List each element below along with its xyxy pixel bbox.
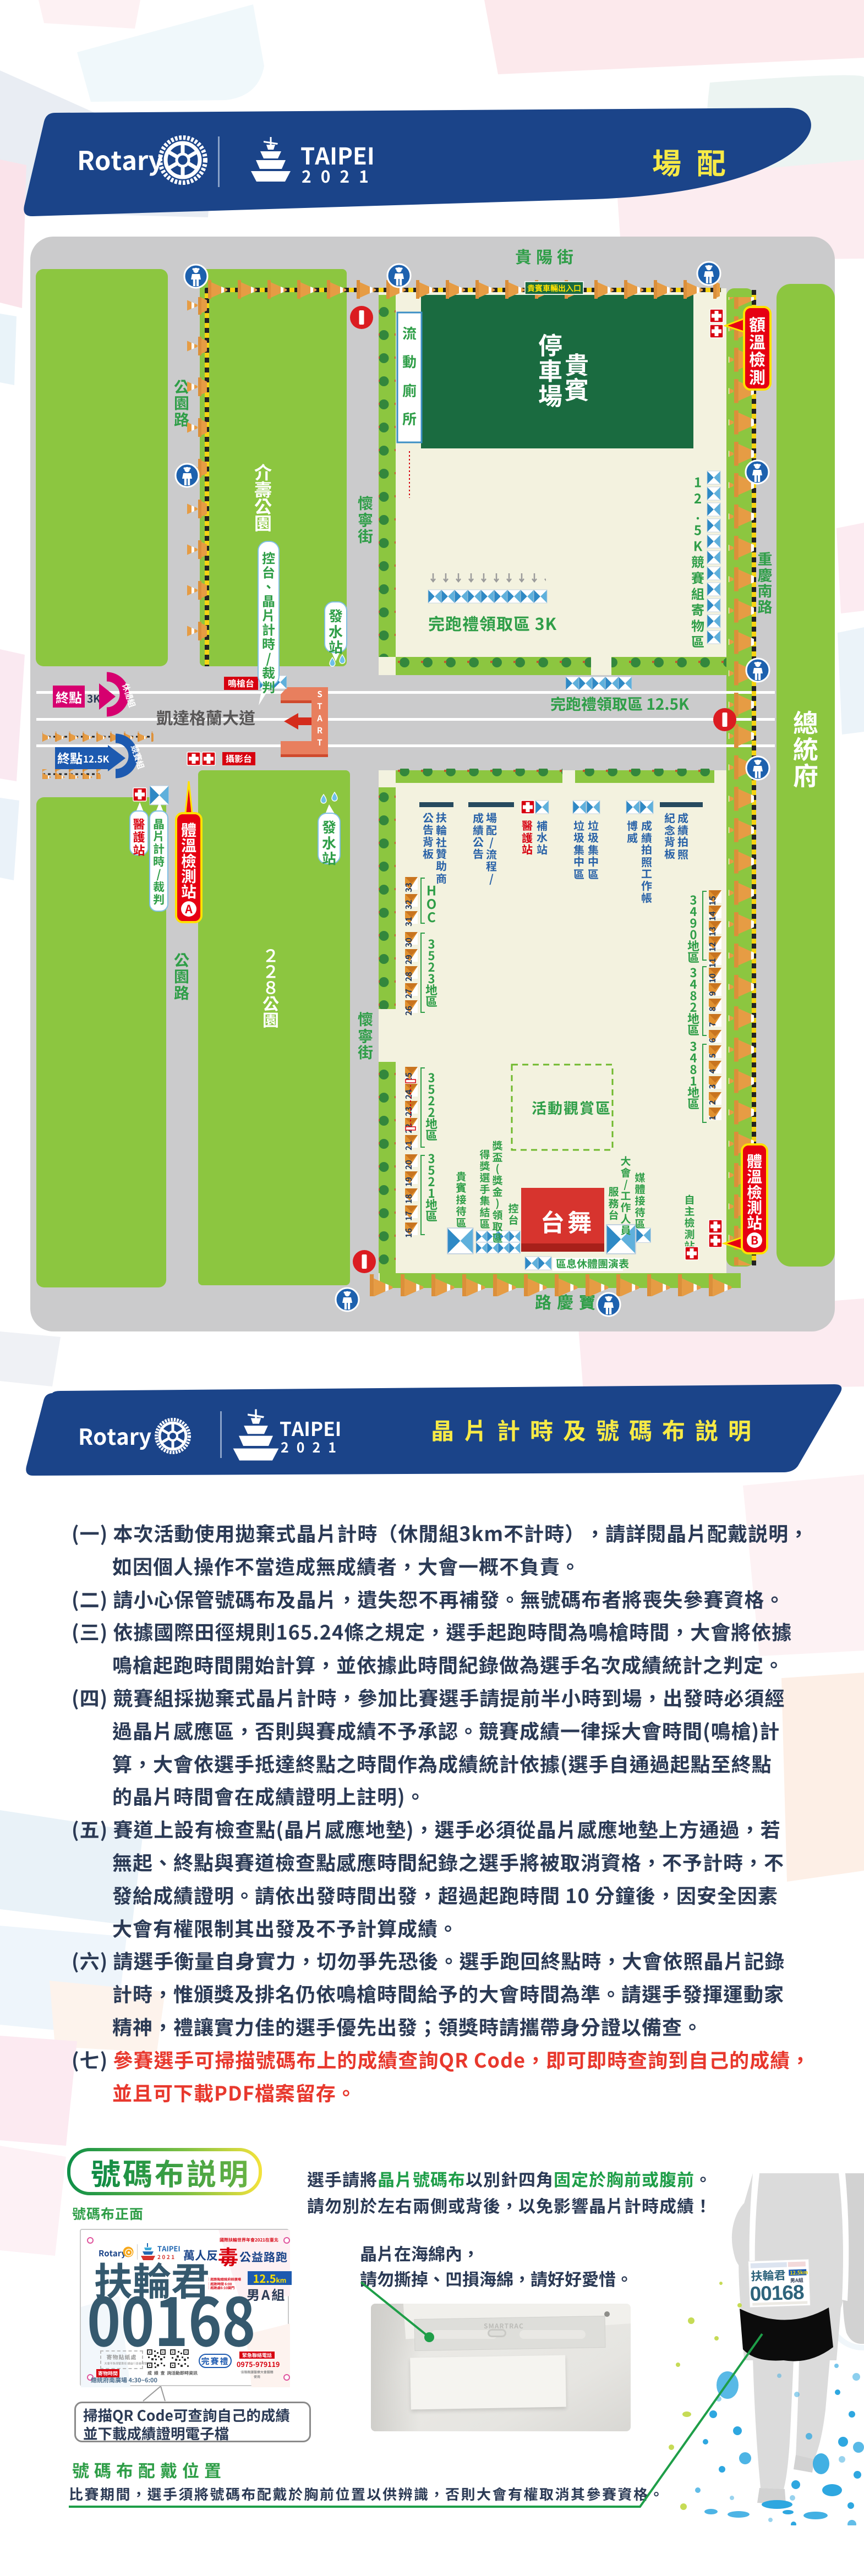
svg-text:14: 14 [707,911,718,921]
svg-text:終點: 終點 [57,748,83,767]
svg-text:扶輪社贊助商: 扶輪社贊助商 [434,812,450,885]
svg-text:晶片計時及號碼布説明: 晶片計時及號碼布説明 [431,1413,761,1446]
svg-text:16: 16 [403,1228,414,1238]
svg-text:31: 31 [403,917,414,927]
svg-text:活動觀賞區: 活動觀賞區 [532,1097,611,1118]
svg-text:3490地區: 3490地區 [685,894,702,963]
svg-text:發水站: 發水站 [319,820,340,866]
svg-text:2: 2 [707,1100,718,1105]
svg-text:貴陽街: 貴陽街 [515,244,578,268]
svg-text:7: 7 [707,1022,718,1027]
svg-text:21: 21 [403,1141,414,1150]
svg-text:懷寧街: 懷寧街 [354,495,376,545]
svg-text:3523地區: 3523地區 [423,938,440,1007]
svg-text:5: 5 [707,1053,718,1058]
svg-text:總統府: 總統府 [788,710,824,789]
svg-text:公園路: 公園路 [171,952,193,1001]
svg-text:成績拍照工作帳: 成績拍照工作帳 [639,820,655,905]
svg-text:26: 26 [403,1006,414,1016]
svg-text:6: 6 [707,1038,718,1043]
svg-text:17: 17 [403,1211,414,1221]
svg-text:12.5K競賽組寄物區: 12.5K競賽組寄物區 [688,475,708,651]
svg-text:垃圾集中區: 垃圾集中區 [586,820,601,880]
svg-text:3481地區: 3481地區 [685,1040,702,1109]
svg-text:醫護站: 醫護站 [520,820,535,856]
svg-text:介壽公園: 介壽公園 [250,463,276,531]
svg-text:自主檢測站: 自主檢測站 [682,1194,697,1252]
svg-text:Rotary: Rotary [78,1419,151,1451]
svg-text:8: 8 [707,1006,718,1011]
svg-text:13: 13 [707,927,718,936]
svg-text:懷寧街: 懷寧街 [354,1011,376,1061]
svg-text:HOC: HOC [422,884,441,923]
svg-text:27: 27 [403,989,414,999]
svg-text:9: 9 [707,991,718,996]
svg-text:博威: 博威 [625,820,641,844]
svg-text:攝影台: 攝影台 [226,752,252,765]
svg-text:區息休體團演表: 區息休體團演表 [556,1256,629,1271]
svg-text:18: 18 [403,1194,414,1204]
svg-text:體溫檢測站: 體溫檢測站 [743,1153,765,1230]
svg-text:A: A [184,901,193,917]
svg-text:T: T [317,700,322,712]
svg-text:晶片計時/裁判: 晶片計時/裁判 [151,818,167,906]
svg-text:12.5km: 12.5km [790,2268,808,2276]
svg-text:貴賓車輛出入口: 貴賓車輛出入口 [527,283,581,294]
svg-text:33: 33 [403,883,414,892]
svg-text:２２８公園: ２２８公園 [259,947,283,1028]
svg-text:貴賓接待區: 貴賓接待區 [454,1171,469,1229]
svg-text:體溫檢測站: 體溫檢測站 [178,822,200,899]
svg-text:12.5K: 12.5K [83,752,110,765]
svg-text:完跑禮領取區 3K: 完跑禮領取區 3K [428,611,557,635]
svg-text:4: 4 [707,1068,718,1073]
svg-text:19: 19 [403,1177,414,1187]
svg-text:控台、晶片計時/裁判: 控台、晶片計時/裁判 [259,551,278,694]
svg-text:媒體接待區: 媒體接待區 [633,1172,648,1230]
svg-text:完跑禮領取區 12.5K: 完跑禮領取區 12.5K [550,693,690,715]
svg-text:20: 20 [403,1160,414,1170]
svg-text:額溫檢測: 額溫檢測 [745,316,769,386]
svg-text:發水站: 發水站 [326,609,346,655]
svg-text:T: T [317,737,322,748]
svg-text:凱達格蘭大道: 凱達格蘭大道 [156,705,255,729]
svg-text:重慶南路: 重慶南路 [754,551,776,615]
svg-text:控台: 控台 [506,1203,521,1226]
svg-text:獎盃(獎金)領取區: 獎盃(獎金)領取區 [490,1140,505,1244]
svg-text:場配: 場配 [652,141,741,183]
svg-text:3: 3 [707,1084,718,1089]
svg-text:32: 32 [403,900,414,909]
svg-text:場配/流程/: 場配/流程/ [484,812,500,885]
svg-text:23: 23 [403,1106,414,1116]
svg-text:29: 29 [403,955,414,964]
svg-text:3482地區: 3482地區 [685,966,702,1035]
svg-text:鳴槍台: 鳴槍台 [228,676,254,689]
svg-text:10: 10 [707,973,718,983]
svg-text:2021: 2021 [281,1437,344,1457]
svg-text:11: 11 [707,958,718,968]
svg-text:2021: 2021 [302,163,378,188]
svg-text:3522地區: 3522地區 [423,1071,440,1141]
svg-text:台舞: 台舞 [540,1203,594,1238]
svg-text:Rotary: Rotary [77,140,163,178]
svg-text:大會/工作人員: 大會/工作人員 [619,1155,633,1236]
svg-text:15: 15 [707,896,718,906]
svg-text:貴賓: 貴賓 [559,352,594,403]
svg-text:成績拍照: 成績拍照 [675,812,691,861]
svg-text:12: 12 [707,942,718,952]
svg-text:垃圾集中區: 垃圾集中區 [571,820,587,880]
svg-text:流動廁所: 流動廁所 [400,326,420,440]
svg-text:R: R [317,725,322,736]
svg-text:補水站: 補水站 [534,820,550,856]
svg-text:S: S [317,688,322,700]
svg-text:1: 1 [707,1116,718,1121]
svg-text:號碼布説明: 號碼布説明 [91,2150,250,2194]
svg-text:28: 28 [403,972,414,982]
svg-text:A: A [316,712,322,724]
svg-text:醫護站: 醫護站 [130,818,148,857]
svg-text:B: B [751,1232,758,1248]
svg-text:3K: 3K [87,691,101,706]
svg-text:30: 30 [403,938,414,947]
svg-text:24: 24 [403,1089,414,1099]
svg-text:3521地區: 3521地區 [423,1152,440,1221]
svg-text:終點: 終點 [56,687,82,706]
